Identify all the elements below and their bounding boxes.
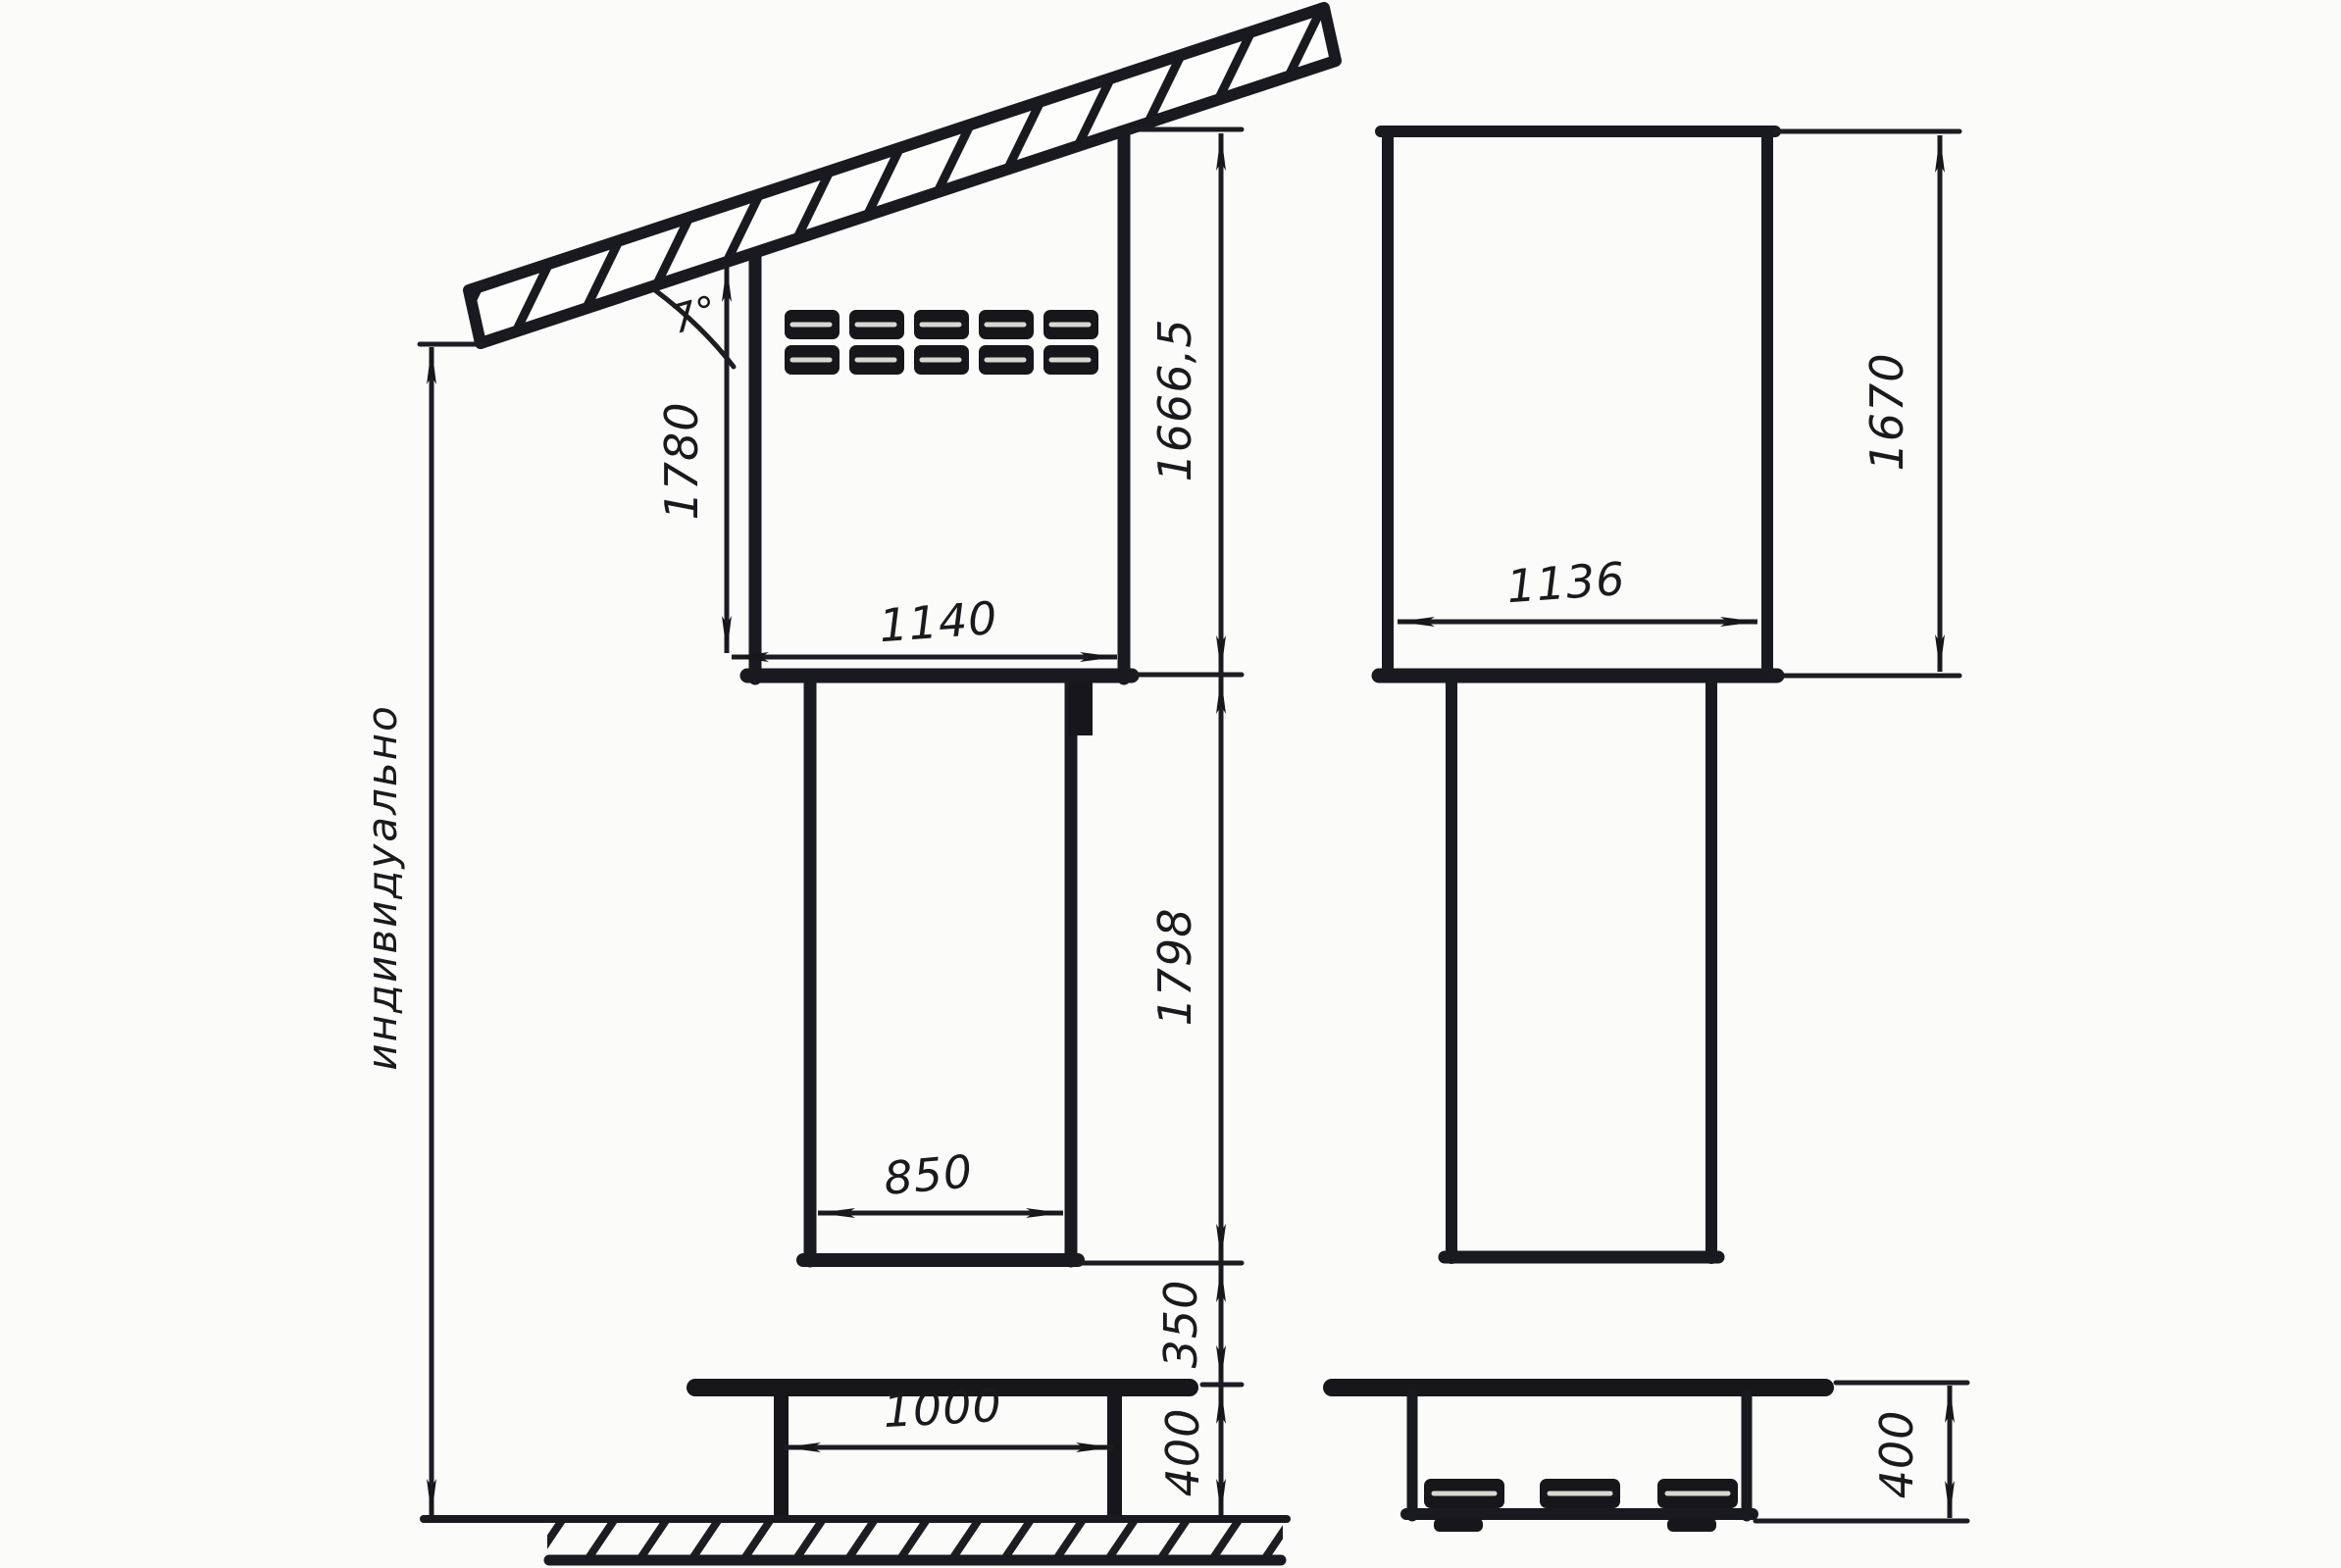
right-view: [1323, 131, 1834, 1532]
dim-leg-spacing-label: 1000: [882, 1379, 1003, 1438]
dim-cabinet-height-front-label: 1670: [1860, 352, 1913, 471]
dimensions: индивидуально 7° 1780 1140 1666,5 1798 3…: [358, 129, 1967, 1521]
louver-row-top: [785, 310, 1098, 339]
dim-cabinet-height-side-label: 1666,5: [1148, 319, 1201, 482]
drawing-sheet: индивидуально 7° 1780 1140 1666,5 1798 3…: [0, 0, 2341, 1568]
dim-cabinet-width-front-label: 1136: [1505, 552, 1628, 613]
pedestal-foot: [1667, 1518, 1716, 1532]
louver-row-bottom: [785, 345, 1098, 375]
front-pedestal-box: [1406, 1395, 1753, 1532]
front-pedestal-top-plate: [1323, 1379, 1834, 1396]
dim-roof-angle-label: 7°: [666, 287, 723, 343]
dim-column-width-label: 850: [882, 1144, 975, 1205]
pedestal-right-leg: [1107, 1395, 1122, 1520]
dim-column-height-label: 1798: [1148, 907, 1201, 1026]
vent-louvers: [785, 310, 1098, 375]
roof-beam: [469, 8, 1336, 343]
dim-stand-height-side-label: 400: [1156, 1408, 1209, 1497]
dim-clearance-label: 350: [1154, 1280, 1207, 1369]
ground-hatch: [547, 1523, 1283, 1558]
drawing-canvas: индивидуально 7° 1780 1140 1666,5 1798 3…: [0, 0, 2341, 1568]
column-bracket: [1069, 681, 1093, 735]
dim-stand-height-front-label: 400: [1870, 1410, 1923, 1499]
dim-front-wall-label: 1780: [655, 401, 708, 520]
pedestal-left-leg: [774, 1395, 789, 1520]
pedestal-foot: [1434, 1518, 1483, 1532]
dim-cabinet-width-side-label: 1140: [878, 591, 1000, 652]
dim-overall-height-label: индивидуально: [358, 704, 406, 1071]
